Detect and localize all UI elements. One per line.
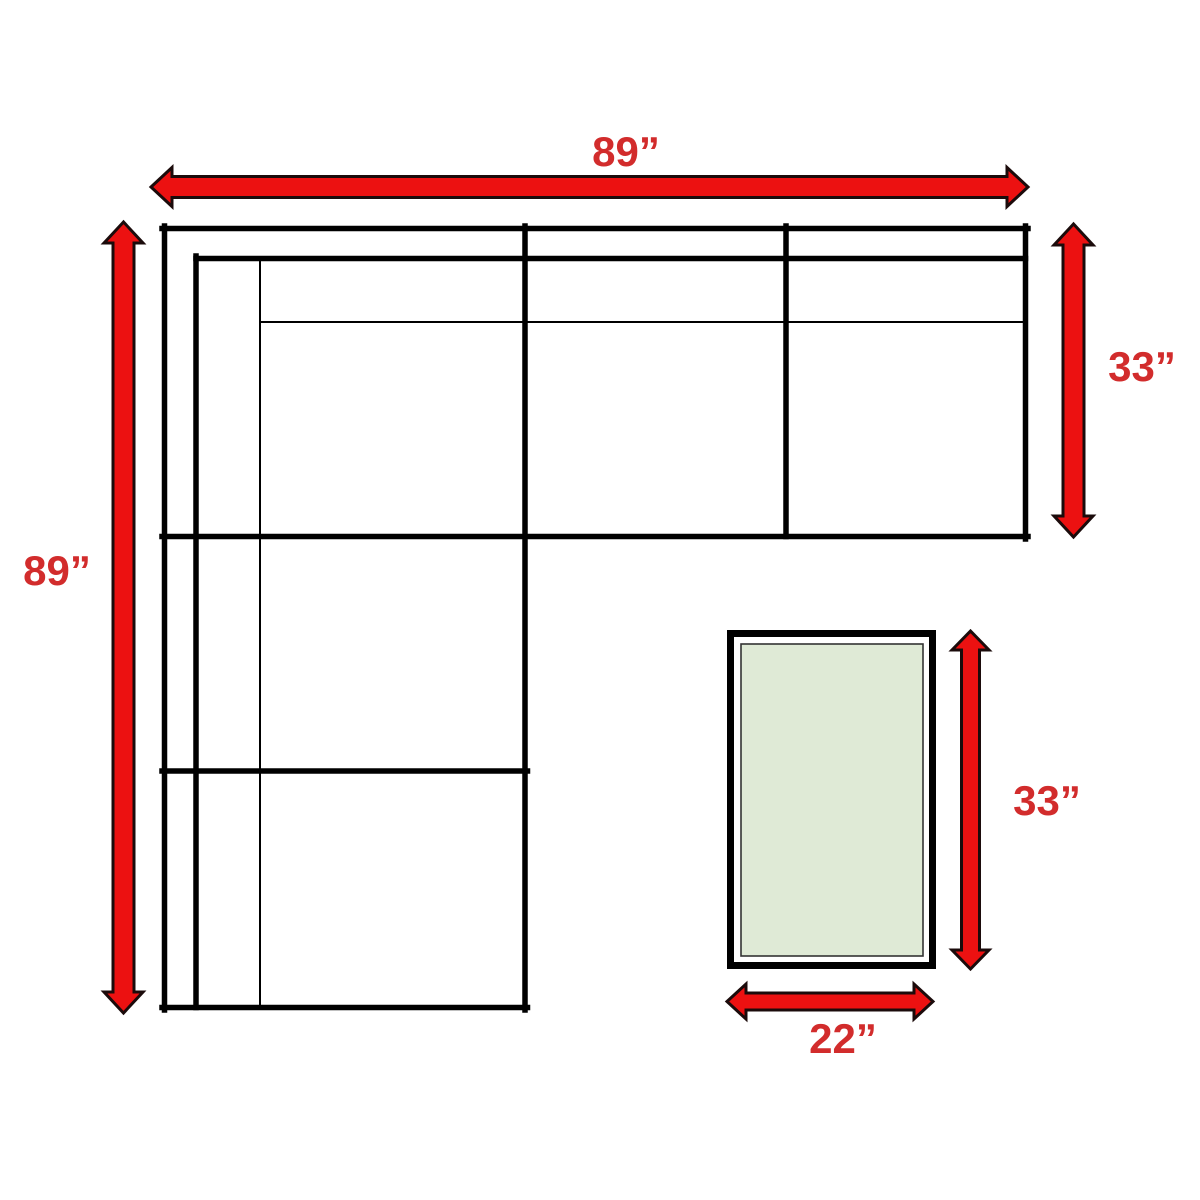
svg-text:22”: 22” xyxy=(809,1015,877,1062)
svg-text:33”: 33” xyxy=(1013,777,1081,824)
svg-text:89”: 89” xyxy=(23,547,91,594)
svg-text:33”: 33” xyxy=(1108,343,1176,390)
svg-text:89”: 89” xyxy=(592,128,660,175)
